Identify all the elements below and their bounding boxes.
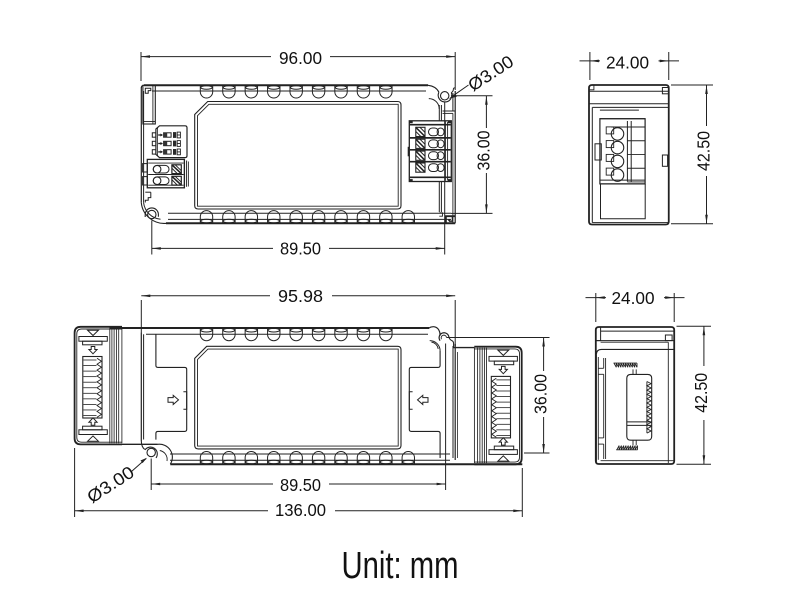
svg-text:96.00: 96.00 <box>279 48 322 68</box>
svg-text:24.00: 24.00 <box>606 52 649 72</box>
svg-text:24.00: 24.00 <box>612 288 655 308</box>
svg-text:Ø3.00: Ø3.00 <box>83 462 138 507</box>
svg-text:36.00: 36.00 <box>531 374 551 414</box>
svg-text:Ø3.00: Ø3.00 <box>464 51 517 95</box>
svg-text:89.50: 89.50 <box>280 475 321 495</box>
svg-text:89.50: 89.50 <box>280 239 321 259</box>
svg-text:42.50: 42.50 <box>691 373 711 413</box>
svg-text:42.50: 42.50 <box>694 131 714 171</box>
svg-text:95.98: 95.98 <box>278 286 323 306</box>
svg-text:Unit: mm: Unit: mm <box>342 545 459 587</box>
svg-text:36.00: 36.00 <box>473 130 493 170</box>
svg-text:136.00: 136.00 <box>275 500 326 520</box>
